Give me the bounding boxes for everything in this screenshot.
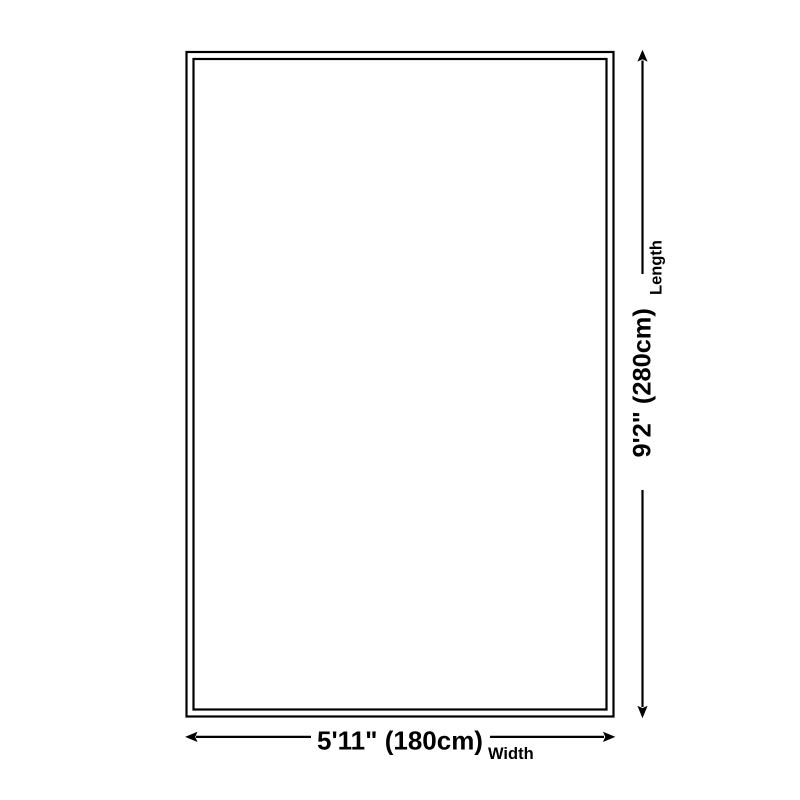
svg-text:5'11" (180cm): 5'11" (180cm) <box>317 726 483 756</box>
svg-text:9'2" (280cm): 9'2" (280cm) <box>629 308 657 457</box>
svg-text:Width: Width <box>488 745 534 763</box>
svg-text:Length: Length <box>648 240 666 295</box>
